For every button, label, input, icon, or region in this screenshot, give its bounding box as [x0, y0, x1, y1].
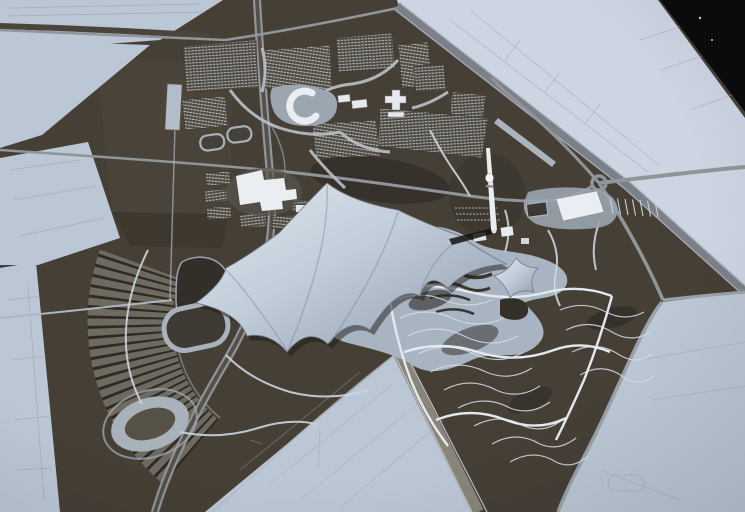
- photo-canvas: [0, 0, 745, 512]
- photo-artifacts: [0, 0, 745, 512]
- model-photo: [0, 0, 745, 512]
- vignette: [0, 0, 745, 512]
